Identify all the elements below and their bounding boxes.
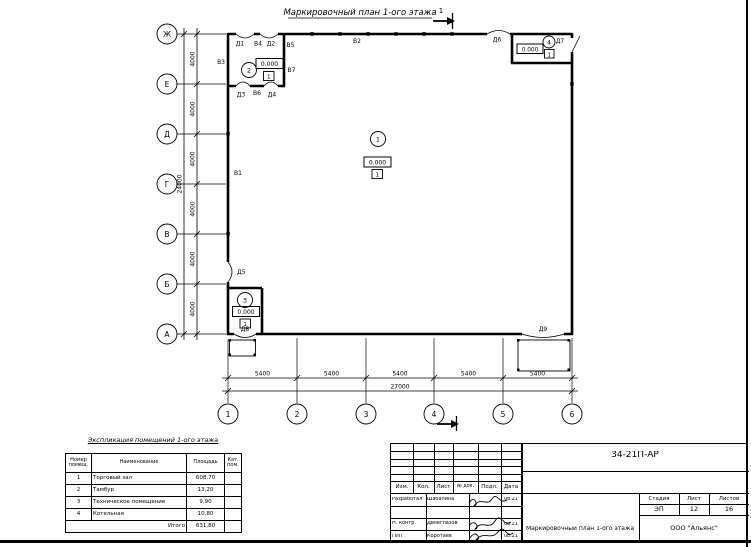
porch-corner-dots [229,339,571,371]
total-category-cell [225,521,242,533]
title-block: 34-21П-АР Изм. Кол. Лист № док. Подл. Да… [390,443,748,541]
axis-label: 5 [501,410,506,419]
room-name-cell: Техническое помещение [92,497,187,509]
axis-label: Е [165,80,170,89]
table-total-row: Итого 631,80 [66,521,242,533]
room-category-cell [225,473,242,485]
floor-type-mark: 1 [548,52,551,58]
room-category-cell [225,485,242,497]
floor-type-mark: 1 [267,75,271,81]
col-doc: № док. [453,484,478,489]
axis-label: 2 [295,410,300,419]
horizontal-dimension-labels: 5400 5400 5400 5400 5400 27000 [255,371,545,391]
sheets-total: 16 [709,506,749,513]
door-label: Д9 [539,326,548,333]
room-number-cell: 1 [66,473,92,485]
grid-line [639,515,749,516]
signature [470,529,513,540]
col-header-name: Наименование [92,454,187,473]
door-label: Д1 [236,41,245,48]
door-marks [228,31,580,338]
sheet-number: 12 [679,506,709,513]
axis-label: 3 [364,410,369,419]
staff-role: ГИП [392,534,426,540]
room-category-cell [225,509,242,521]
dim-label: 5400 [530,371,545,378]
dim-label: 4000 [190,151,197,166]
table-row: 1 Торговый зал 608,70 [66,473,242,485]
explication-title: Экспликация помещений 1-ого этажа [65,436,241,444]
staff-role: Разработал [392,497,426,503]
drawing-name: Маркировочный план 1-ого этажа [523,526,637,533]
door-label: Д3 [237,92,246,99]
room-3-annotation: 3 0.000 1 [233,293,260,329]
table-row: 3 Техническое помещение 9,90 [66,497,242,509]
dim-label: 5400 [392,371,407,378]
axis-label: 6 [570,410,575,419]
entrance-porches [230,340,571,371]
room-area-cell: 13,20 [187,485,225,497]
stage-value: ЭП [639,506,679,513]
drawing-sheet: { "plan": { "title": "Маркировочный план… [0,0,751,547]
door-label: Д2 [267,41,276,48]
row-axis-labels: Ж Е Д Г В Б А [163,30,171,339]
dim-total-label: 24000 [177,174,184,193]
window-label: В6 [253,90,261,97]
room-4-annotation: 4 0.000 1 [517,36,555,58]
dim-label: 4000 [190,201,197,216]
col-header-category: Кат. пом. [225,454,242,473]
elevation-mark: 0.000 [237,309,254,316]
door-label: Д7 [556,38,565,45]
room-number: 3 [243,297,247,305]
dim-label: 4000 [190,301,197,316]
col-data: Дата [501,484,521,490]
axis-label: А [164,330,170,339]
explication-table: Номер помещ. Наименование Площадь Кат. п… [65,453,242,533]
walls [227,33,573,335]
room-1-annotation: 1 0.000 1 [364,132,391,179]
sheet-label: Лист [679,496,709,502]
window-label: В2 [353,38,361,45]
room-category-cell [225,497,242,509]
staff-name: Шабалина [427,497,469,503]
window-label: В7 [288,67,296,74]
column-axis-labels: 1 2 3 4 5 6 [226,410,575,419]
sheet-frame-right [746,0,748,547]
door-label: Д6 [493,37,502,44]
col-header-area: Площадь [187,454,225,473]
room-area-cell: 608,70 [187,473,225,485]
room-number-cell: 2 [66,485,92,497]
col-kol: Кол. [413,484,434,490]
axis-label: Д [164,130,170,139]
door-label: Д8 [241,326,250,333]
window-label: В4 [254,41,262,48]
col-header-number: Номер помещ. [66,454,92,473]
grid-line [391,493,749,494]
total-label-cell: Итого [66,521,187,533]
room-name-cell: Тамбур [92,485,187,497]
room-number: 2 [247,67,251,75]
signatures [465,493,521,542]
room-number: 4 [547,40,551,47]
room-number: 1 [376,136,380,144]
staff-name: Коротаев [427,534,469,540]
col-podl: Подл. [478,484,501,490]
room-number-cell: 4 [66,509,92,521]
axis-label: В [164,230,169,239]
window-label: В1 [234,170,242,177]
stage-label: Стадия [639,496,679,502]
dim-label: 4000 [190,101,197,116]
elevation-mark: 0.000 [261,61,278,68]
dim-label: 4000 [190,51,197,66]
dim-label: 4000 [190,251,197,266]
grid-line [521,471,749,472]
door-label: Д4 [268,92,277,99]
col-list: Лист [434,484,453,490]
dim-label: 5400 [255,371,270,378]
window-labels: В1 В2 В3 В4 В5 В6 В7 [217,38,361,177]
staff-role: Н. контр. [392,521,426,527]
company-name: ООО "Альянс" [639,525,749,532]
column-axes [218,338,582,424]
axis-label: 4 [432,410,437,419]
table-row: 2 Тамбур 13,20 [66,485,242,497]
axis-label: Г [165,180,170,189]
dim-total-label: 27000 [390,384,409,391]
table-header-row: Номер помещ. Наименование Площадь Кат. п… [66,454,242,473]
section-number: 1 [439,7,443,15]
axis-label: Б [164,280,169,289]
table-row: 4 Котельная 10,80 [66,509,242,521]
room-name-cell: Торговый зал [92,473,187,485]
signature [469,496,507,506]
room-area-cell: 10,80 [187,509,225,521]
dim-label: 5400 [324,371,339,378]
dim-label: 5400 [461,371,476,378]
window-label: В3 [217,59,225,66]
room-2-annotation: 2 0.000 1 [242,59,284,81]
total-area-cell: 631,80 [187,521,225,533]
plan-title: Маркировочный план 1-ого этажа [283,8,436,18]
col-izm: Изм. [391,484,413,490]
room-area-cell: 9,90 [187,497,225,509]
axis-label: 1 [226,410,231,419]
room-number-cell: 3 [66,497,92,509]
elevation-mark: 0.000 [522,47,539,53]
staff-name: Двоеглазов [427,521,469,527]
section-mark-bottom: 1 [437,416,459,432]
room-name-cell: Котельная [92,509,187,521]
sheet-frame-bottom [0,540,751,543]
document-number: 34-21П-АР [521,451,749,461]
explication-block: Экспликация помещений 1-ого этажа Номер … [65,436,241,533]
floor-type-mark: 1 [375,173,379,179]
window-label: В5 [287,42,295,49]
elevation-mark: 0.000 [369,160,386,167]
door-label: Д5 [237,269,246,276]
axis-label: Ж [163,30,171,39]
signature [469,518,511,529]
grid-line [639,504,749,505]
sheets-label: Листов [709,496,749,502]
floor-plan: Маркировочный план 1-ого этажа 1 1 [0,0,751,432]
